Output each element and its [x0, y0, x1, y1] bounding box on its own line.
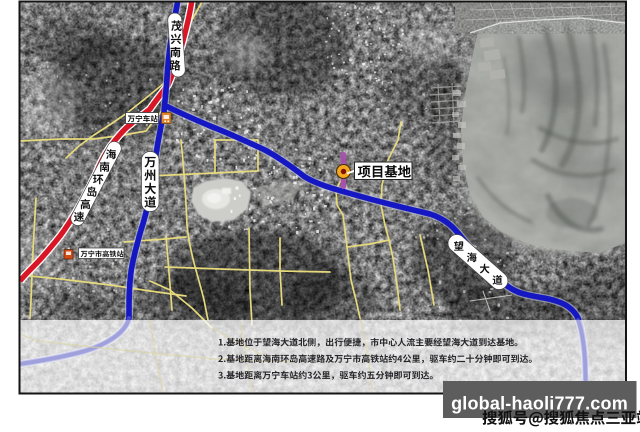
svg-text:global-haoli777.com: global-haoli777.com — [451, 394, 628, 414]
